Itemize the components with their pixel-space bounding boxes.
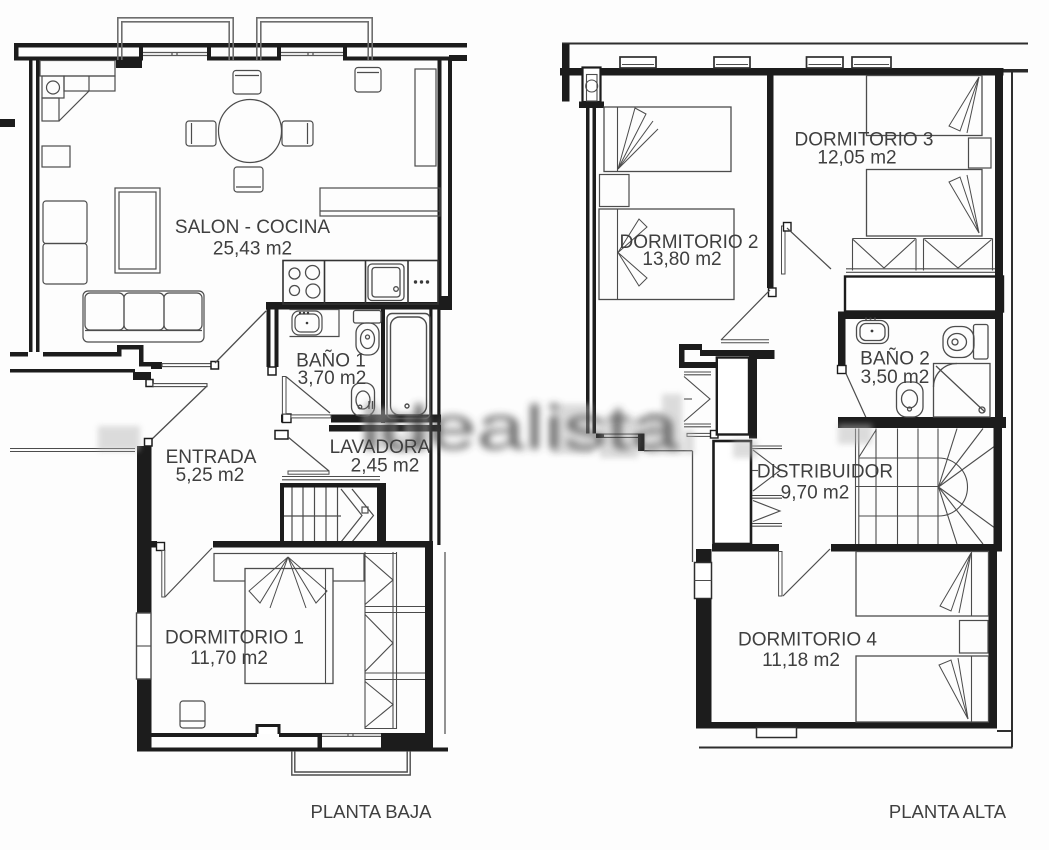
svg-text:PLANTA ALTA: PLANTA ALTA [889,801,1007,822]
svg-text:5,25 m2: 5,25 m2 [176,465,245,486]
svg-text:SALON - COCINA: SALON - COCINA [175,217,331,238]
svg-text:DORMITORIO 1: DORMITORIO 1 [165,628,304,649]
svg-text:25,43 m2: 25,43 m2 [213,239,292,260]
svg-text:11,70 m2: 11,70 m2 [190,648,268,669]
svg-text:DISTRIBUIDOR: DISTRIBUIDOR [757,462,893,483]
svg-text:9,70 m2: 9,70 m2 [781,483,850,504]
svg-text:3,70 m2: 3,70 m2 [298,368,367,389]
svg-text:3,50 m2: 3,50 m2 [861,367,930,388]
svg-text:2,45 m2: 2,45 m2 [351,456,420,477]
svg-text:DORMITORIO 4: DORMITORIO 4 [738,630,877,651]
svg-text:12,05 m2: 12,05 m2 [817,148,896,169]
svg-text:13,80 m2: 13,80 m2 [642,249,721,270]
svg-text:11,18 m2: 11,18 m2 [762,650,840,671]
svg-text:PLANTA BAJA: PLANTA BAJA [311,801,433,822]
